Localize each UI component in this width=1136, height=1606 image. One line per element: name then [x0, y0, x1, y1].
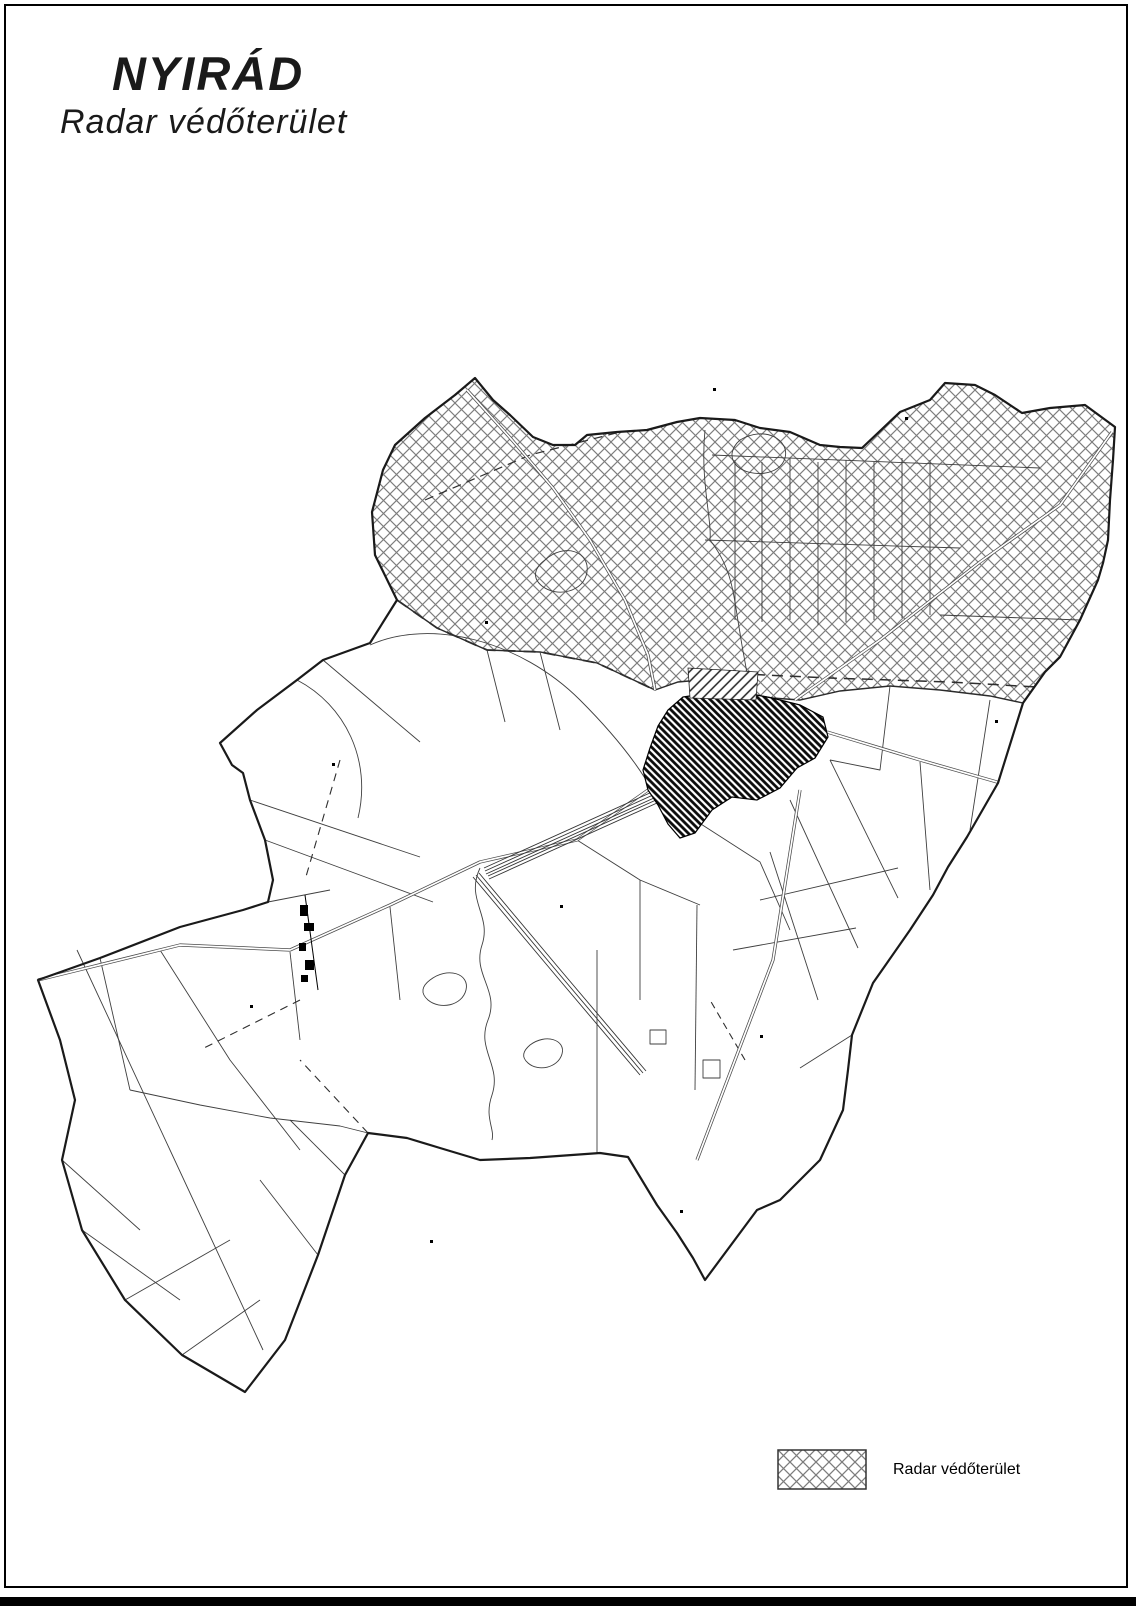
map-sheet: NYIRÁD Radar védőterület	[0, 0, 1136, 1606]
legend-label: Radar védőterület	[893, 1461, 1020, 1479]
legend: Radar védőterület	[777, 1449, 1020, 1490]
radar-zone-swatch-icon	[777, 1449, 867, 1490]
footer-bar	[0, 1597, 1136, 1606]
track-corridor	[473, 792, 657, 1075]
map-canvas	[0, 0, 1136, 1606]
